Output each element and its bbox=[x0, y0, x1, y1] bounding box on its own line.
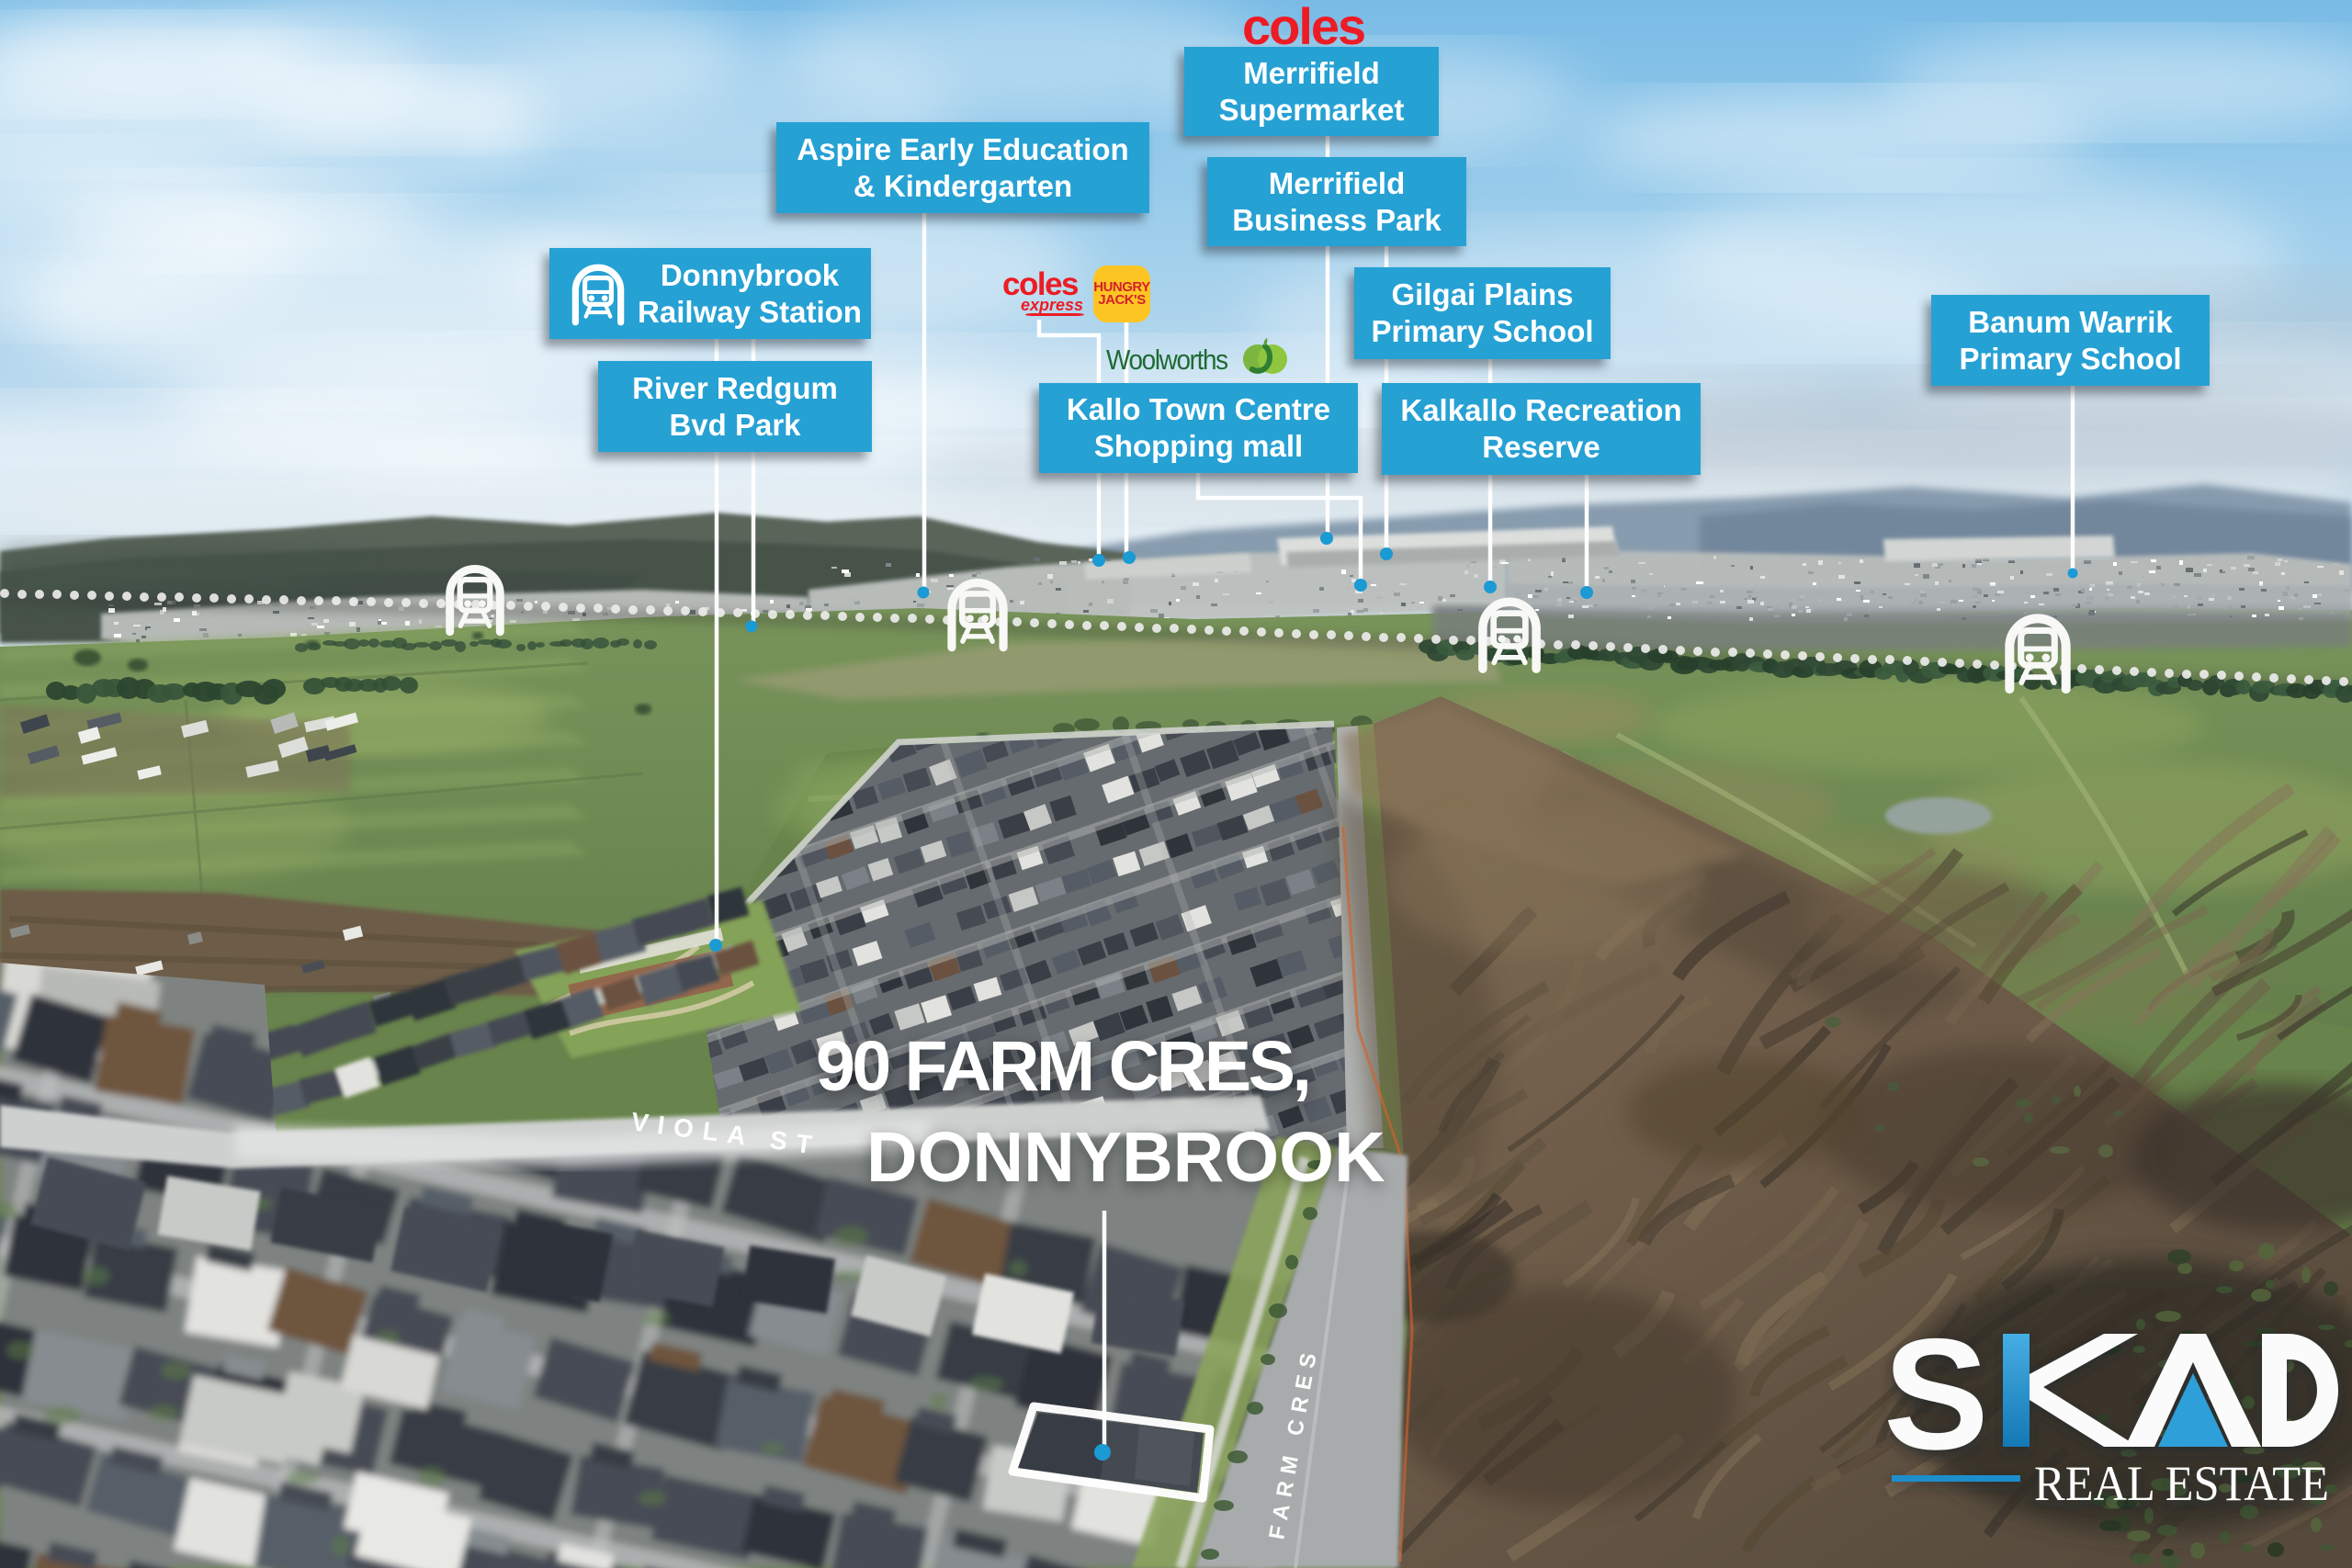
svg-text:REAL ESTATE: REAL ESTATE bbox=[2034, 1456, 2329, 1511]
svg-text:S: S bbox=[1883, 1306, 1989, 1483]
